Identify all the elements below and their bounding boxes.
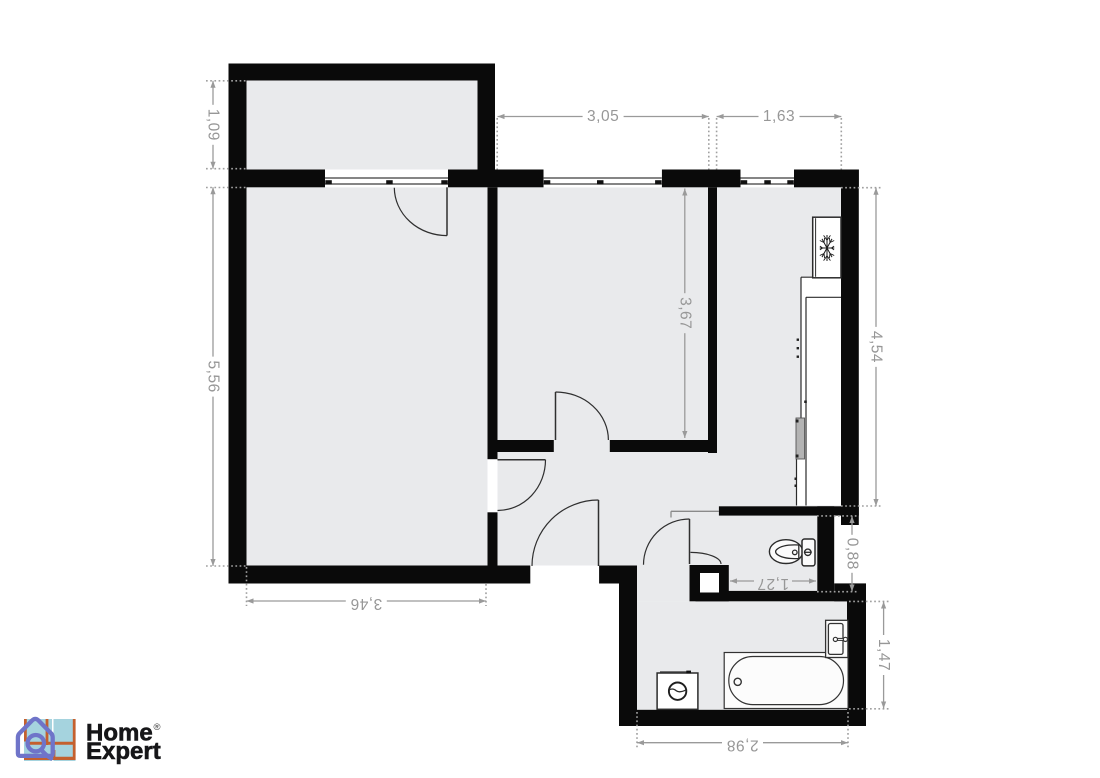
svg-text:1,47: 1,47: [875, 639, 892, 671]
svg-text:®: ®: [154, 722, 161, 733]
svg-text:Expert: Expert: [86, 738, 161, 765]
svg-text:3,05: 3,05: [587, 108, 619, 125]
svg-text:0,88: 0,88: [844, 538, 861, 570]
svg-text:1,63: 1,63: [763, 108, 795, 125]
svg-text:2,98: 2,98: [726, 737, 758, 754]
svg-text:4,54: 4,54: [868, 331, 885, 363]
svg-text:1,09: 1,09: [205, 109, 222, 141]
svg-text:5,56: 5,56: [205, 361, 222, 393]
svg-text:1,27: 1,27: [757, 575, 789, 592]
svg-text:3,67: 3,67: [676, 297, 693, 329]
svg-text:3,46: 3,46: [350, 595, 382, 612]
